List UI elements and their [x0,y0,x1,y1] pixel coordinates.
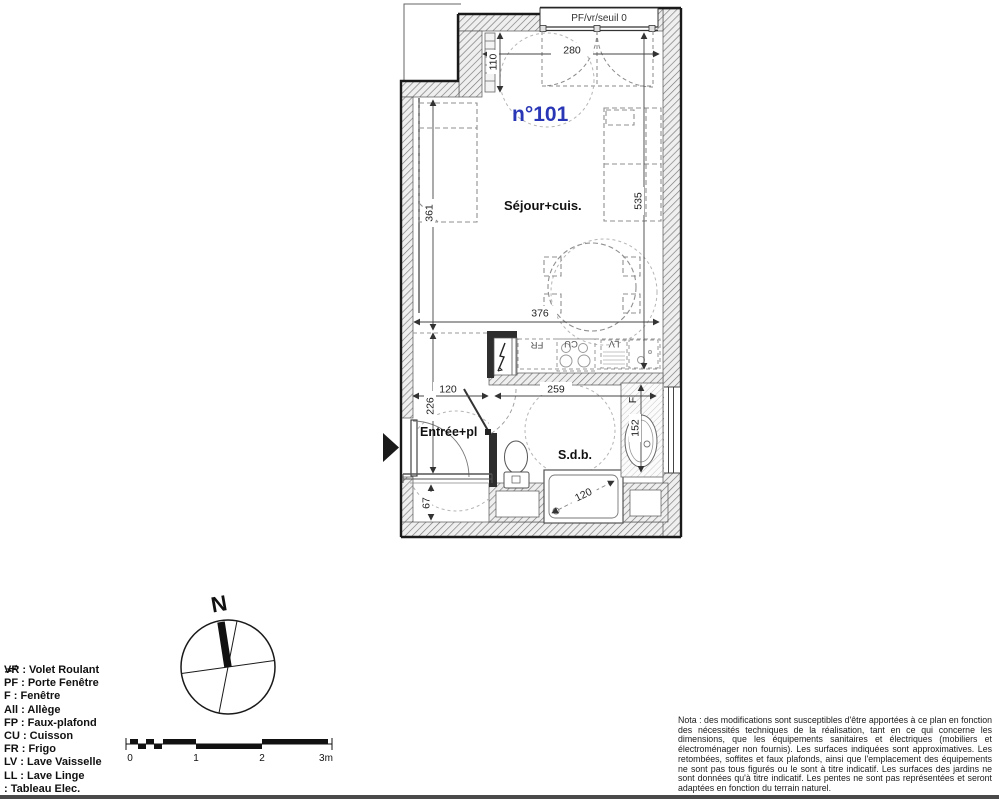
room-label-living: Séjour+cuis. [504,198,582,213]
dim-top-width: 280 [563,45,581,57]
scale-tick-3: 3m [319,753,333,764]
french-window-label: PF/vr/seuil 0 [571,13,627,24]
page-bottom-border [0,795,999,799]
toilet [504,441,529,488]
dishwasher-label: LV [608,338,620,349]
shower: 120 [544,470,623,523]
bath-window-label: F [627,397,639,403]
nota-text: Nota : des modifications sont susceptibl… [678,716,992,794]
legend-item: VR : Volet Roulant [4,664,204,677]
compass-needle [221,622,228,667]
cooktop-label: CU [564,338,578,349]
legend-item: FR : Frigo [4,743,204,756]
legend-item: F : Fenêtre [4,690,204,703]
dim-radiator: 110 [488,53,500,70]
dim-bath-width: 259 [547,384,565,396]
appliance-labels: FR CU LV [531,338,620,350]
legend-item: LL : Lave Linge [4,770,204,783]
kitchen-sink [638,351,652,364]
dim-living-right: 535 [633,192,645,210]
dim-living-width: 376 [531,308,549,320]
north-label: N [209,590,229,617]
room-label-bath: S.d.b. [558,448,592,462]
legend-item: LV : Lave Vaisselle [4,756,204,769]
dim-living-left: 361 [424,204,436,222]
legend: VR : Volet Roulant PF : Porte Fenêtre F … [4,664,204,796]
window-swing-arcs [542,31,653,87]
legend-electrical-label: : Tableau Elec. [4,783,80,795]
electrical-symbol-icon [4,664,24,674]
floor-plan-page: PF/vr/seuil 0 [0,0,999,800]
scale-tick-2: 2 [259,753,265,764]
dim-bath-depth: 152 [630,419,642,437]
dining-table [544,243,640,331]
fridge-label: FR [531,339,544,350]
dim-hall-width: 120 [439,384,457,396]
legend-item: FP : Faux-plafond [4,717,204,730]
legend-item: PF : Porte Fenêtre [4,677,204,690]
legend-item: CU : Cuisson [4,730,204,743]
dim-entry-length: 226 [425,397,437,415]
unit-number: n°101 [512,103,569,126]
electrical-closet [487,331,517,378]
room-label-entry: Entrée+pl [420,425,477,439]
bath-window [664,387,680,473]
dishwasher-lines [603,352,625,364]
legend-item: All : Allège [4,704,204,717]
entrance-arrow [383,433,399,462]
dim-closet-depth: 67 [421,497,433,509]
